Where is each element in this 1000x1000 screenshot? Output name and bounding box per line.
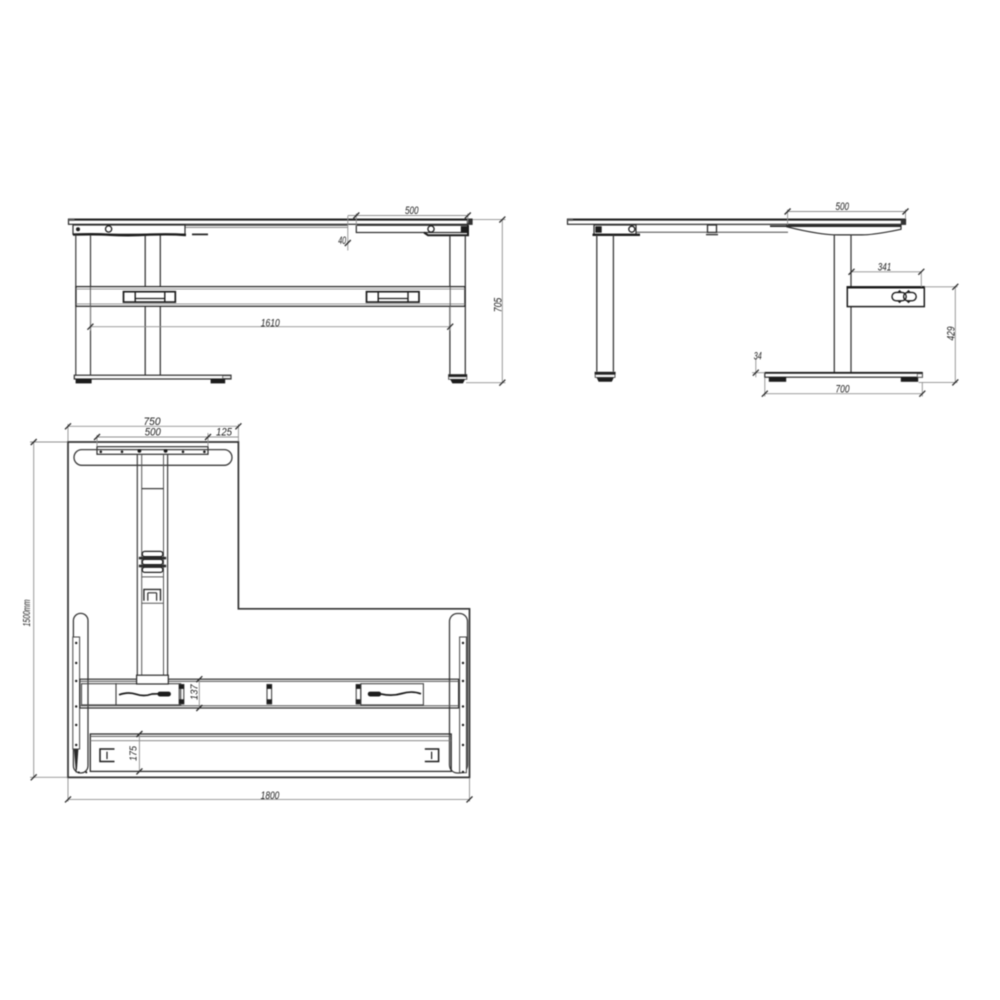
svg-text:500: 500 [145,427,162,439]
svg-text:34: 34 [754,350,762,362]
svg-text:700: 700 [836,384,851,396]
svg-text:500: 500 [405,205,419,217]
svg-text:500: 500 [836,201,850,213]
svg-text:125: 125 [216,427,233,439]
svg-text:705: 705 [492,297,504,312]
svg-text:1610: 1610 [261,317,281,329]
svg-text:40: 40 [338,235,347,247]
svg-text:1800: 1800 [261,790,280,802]
svg-text:137: 137 [188,683,200,700]
svg-text:175: 175 [127,746,139,761]
svg-text:341: 341 [878,261,892,273]
svg-text:1500mm: 1500mm [22,600,33,627]
svg-text:429: 429 [945,327,957,341]
